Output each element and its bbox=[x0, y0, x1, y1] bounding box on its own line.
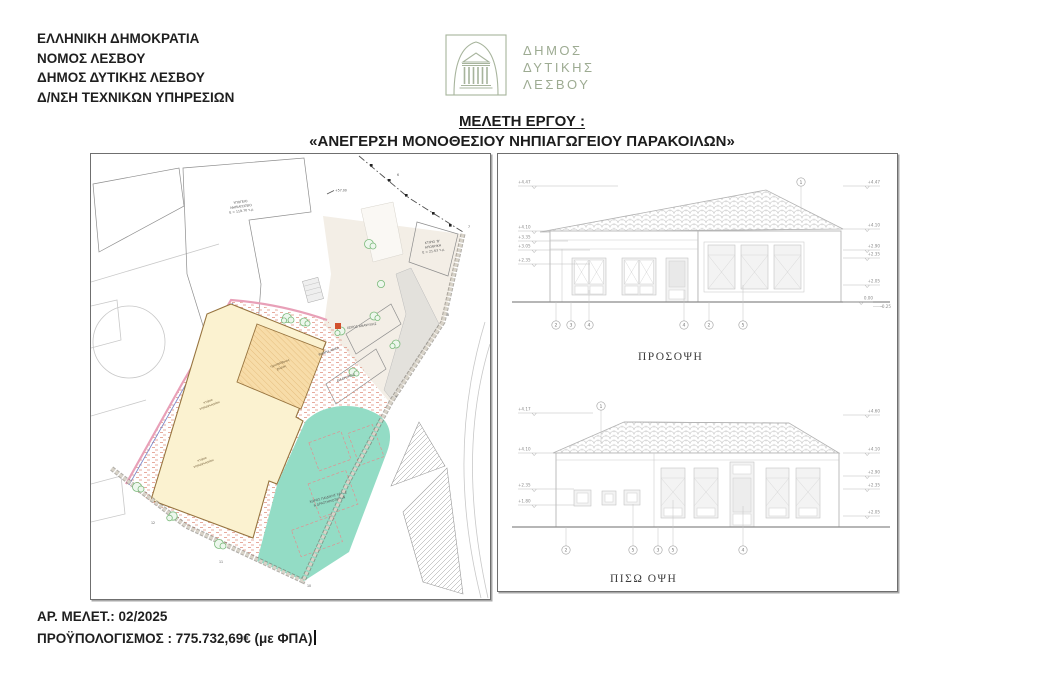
back-bubble-3: 3 bbox=[657, 548, 660, 554]
front-bubble-6: 5 bbox=[742, 323, 745, 329]
vertex-10: 10 bbox=[307, 584, 311, 588]
logo-word-2: ΔΥΤΙΚΗΣ bbox=[523, 59, 595, 76]
front-bubble-4: 4 bbox=[683, 323, 686, 329]
title-kicker[interactable]: ΜΕΛΕΤΗ ΕΡΓΟΥ : bbox=[0, 113, 1044, 130]
back-level-l2: +4.10 bbox=[518, 447, 531, 452]
back-level-r5: +2.05 bbox=[867, 510, 880, 515]
front-level-r1: +4.47 bbox=[867, 180, 880, 185]
front-roof-callout-label: 1 bbox=[800, 180, 803, 186]
back-bubble-2: 5 bbox=[632, 548, 635, 554]
front-door bbox=[666, 258, 688, 302]
back-level-l1: +4.17 bbox=[518, 407, 531, 412]
elevations-svg: 1 bbox=[498, 154, 897, 591]
budget-line[interactable]: ΠΡΟΫΠΟΛΟΓΙΣΜΟΣ : 775.732,69€ (με ΦΠΑ) bbox=[37, 628, 316, 650]
front-level-r6: 0.00 bbox=[864, 296, 874, 301]
agency-line-3[interactable]: ΔΗΜΟΣ ΔΥΤΙΚΗΣ ΛΕΣΒΟΥ bbox=[37, 68, 234, 88]
front-level-r7: -0.25 bbox=[880, 304, 891, 309]
front-level-l4: +3.05 bbox=[518, 244, 531, 249]
budget-text[interactable]: ΠΡΟΫΠΟΛΟΓΙΣΜΟΣ : 775.732,69€ (με ΦΠΑ) bbox=[37, 631, 313, 646]
back-level-l3: +2.35 bbox=[518, 483, 531, 488]
site-plan-drawing[interactable]: ΥΠΟΓΕΙΟ ΝΗΠΙΑΓΩΓΕΙΟ Ε = 119.70 τ.μ. 6 7 … bbox=[90, 153, 491, 600]
agency-line-2[interactable]: ΝΟΜΟΣ ΛΕΣΒΟΥ bbox=[37, 49, 234, 69]
front-bubble-3: 4 bbox=[588, 323, 591, 329]
vertex-7: 7 bbox=[468, 225, 470, 229]
back-level-r3: +2.90 bbox=[867, 470, 880, 475]
back-level-r2: +4.10 bbox=[867, 447, 880, 452]
document-page: { "header": { "lines": ["ΕΛΛΗΝΙΚΗ ΔΗΜΟΚΡ… bbox=[0, 0, 1044, 695]
site-plan-svg: ΥΠΟΓΕΙΟ ΝΗΠΙΑΓΩΓΕΙΟ Ε = 119.70 τ.μ. 6 7 … bbox=[91, 154, 490, 599]
back-roof-callout-label: 1 bbox=[600, 404, 603, 410]
agency-line-1[interactable]: ΕΛΛΗΝΙΚΗ ΔΗΜΟΚΡΑΤΙΑ bbox=[37, 29, 234, 49]
logo-wordmark: ΔΗΜΟΣ ΔΥΤΙΚΗΣ ΛΕΣΒΟΥ bbox=[523, 42, 595, 93]
vertex-8: 8 bbox=[447, 313, 449, 317]
project-title-block[interactable]: ΜΕΛΕΤΗ ΕΡΓΟΥ : «ΑΝΕΓΕΡΣΗ ΜΟΝΟΘΕΣΙΟΥ ΝΗΠΙ… bbox=[0, 113, 1044, 150]
vertex-9: 9 bbox=[395, 395, 397, 399]
municipality-logo[interactable]: ΔΗΜΟΣ ΔΥΤΙΚΗΣ ΛΕΣΒΟΥ bbox=[443, 32, 595, 103]
front-elevation-caption: ΠΡΟΣΟΨΗ bbox=[638, 351, 703, 363]
temple-arch-emblem-icon bbox=[443, 32, 509, 103]
front-level-l5: +2.35 bbox=[518, 258, 531, 263]
back-elevation-caption: ΠΙΣΩ ΟΨΗ bbox=[610, 573, 677, 585]
logo-word-3: ΛΕΣΒΟΥ bbox=[523, 76, 595, 93]
front-window-3 bbox=[708, 245, 735, 289]
vertex-11: 11 bbox=[219, 560, 223, 564]
project-title[interactable]: «ΑΝΕΓΕΡΣΗ ΜΟΝΟΘΕΣΙΟΥ ΝΗΠΙΑΓΩΓΕΙΟΥ ΠΑΡΑΚΟ… bbox=[0, 133, 1044, 150]
front-level-r2: +4.10 bbox=[867, 223, 880, 228]
vertex-12: 12 bbox=[151, 521, 155, 525]
text-caret bbox=[314, 630, 316, 645]
front-level-l3: +3.35 bbox=[518, 235, 531, 240]
front-window-5 bbox=[774, 245, 801, 289]
agency-header[interactable]: ΕΛΛΗΝΙΚΗ ΔΗΜΟΚΡΑΤΙΑ ΝΟΜΟΣ ΛΕΣΒΟΥ ΔΗΜΟΣ Δ… bbox=[37, 29, 234, 107]
front-window-4 bbox=[741, 245, 768, 289]
front-window-2 bbox=[622, 258, 656, 295]
back-bubble-1: 2 bbox=[565, 548, 568, 554]
logo-word-1: ΔΗΜΟΣ bbox=[523, 42, 595, 59]
front-bubble-5: 2 bbox=[708, 323, 711, 329]
back-level-r4: +2.35 bbox=[867, 483, 880, 488]
back-small-windows bbox=[574, 490, 640, 506]
front-level-r5: +2.05 bbox=[867, 279, 880, 284]
back-level-l4: +1.80 bbox=[518, 499, 531, 504]
elevations-drawing[interactable]: 1 bbox=[497, 153, 898, 592]
front-bubble-1: 2 bbox=[555, 323, 558, 329]
back-window-4 bbox=[796, 468, 820, 518]
back-window-3 bbox=[766, 468, 789, 518]
back-level-r1: +4.60 bbox=[867, 409, 880, 414]
agency-line-4[interactable]: Δ/ΝΣΗ ΤΕΧΝΙΚΩΝ ΥΠΗΡΕΣΙΩΝ bbox=[37, 88, 234, 108]
back-door bbox=[730, 462, 754, 527]
front-level-l1: +4.47 bbox=[518, 180, 531, 185]
back-window-2 bbox=[694, 468, 718, 518]
front-window-1 bbox=[572, 258, 606, 295]
back-bubble-5: 4 bbox=[742, 548, 745, 554]
front-level-r4: +2.35 bbox=[867, 252, 880, 257]
front-bubble-2: 3 bbox=[570, 323, 573, 329]
back-bubble-4: 5 bbox=[672, 548, 675, 554]
footer-block[interactable]: ΑΡ. ΜΕΛΕΤ.: 02/2025 ΠΡΟΫΠΟΛΟΓΙΣΜΟΣ : 775… bbox=[37, 606, 316, 649]
study-number[interactable]: ΑΡ. ΜΕΛΕΤ.: 02/2025 bbox=[37, 606, 316, 628]
front-level-r3: +2.90 bbox=[867, 244, 880, 249]
vertex-6: 6 bbox=[397, 173, 399, 177]
front-level-l2: +4.10 bbox=[518, 225, 531, 230]
spot-elevation-label: +57.00 bbox=[335, 189, 347, 193]
